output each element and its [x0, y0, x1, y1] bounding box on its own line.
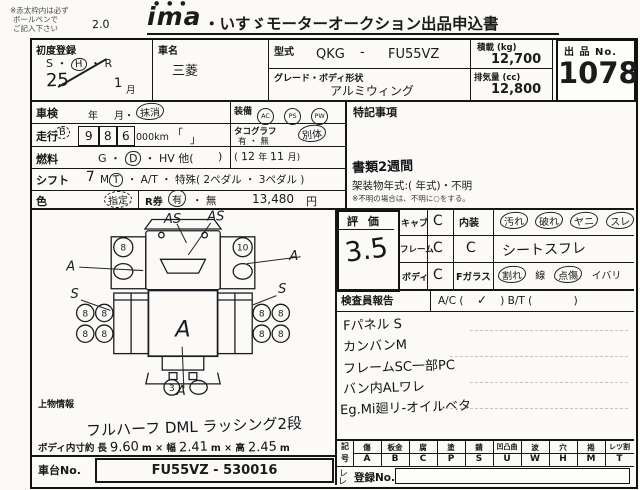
color-value: 指定: [104, 191, 132, 208]
dims-label: ボディ内寸約: [38, 443, 94, 454]
interior-items: 汚れ 破れ ヤニ スレ: [500, 212, 634, 229]
mark-a-bottom: A: [176, 384, 186, 396]
divider: [398, 262, 634, 263]
mileage-digit-box-1: 9: [78, 126, 99, 146]
divider: [152, 38, 153, 100]
legend-symbol-label-2: 号: [341, 453, 349, 464]
model-dash: -: [360, 45, 365, 60]
ps-icon: PS: [284, 108, 301, 125]
legend-name-fushoku: 腐: [409, 442, 437, 453]
chassis-number-box: FU55VZ - 530016: [95, 458, 334, 483]
mileage-bracket-right: 」: [190, 131, 201, 147]
chassis-number-value: FU55VZ - 530016: [152, 463, 278, 478]
fuel-d-circled: D: [124, 151, 141, 167]
legend-name-ana: 穴: [549, 442, 577, 453]
erased-circled: 抹消: [136, 102, 165, 120]
divider: [30, 100, 634, 102]
tread-front-left: 8: [120, 244, 126, 254]
inspector-ac-bt: A/C ( ✓ ) B/T ( ): [438, 293, 578, 307]
inspector-note-4: バン内ALワレ: [343, 376, 425, 398]
legend-name-sabi: 錆: [465, 442, 493, 453]
legend-name-nuri: 塗: [437, 442, 465, 453]
shift-options: MT ・ A/T ・ 特殊( 2ペダル ・ 3ペダル ): [100, 172, 304, 187]
interior-dirt: 汚れ: [500, 211, 529, 229]
bt-close: ): [574, 295, 578, 307]
page-title: ・いすゞモーターオークション出品申込書: [204, 12, 499, 34]
glass-chip: 点傷: [554, 265, 583, 283]
date-year-label: 年: [258, 153, 267, 163]
payload-value: 12,700: [491, 52, 541, 67]
dims-length-label: 長: [97, 443, 107, 454]
legend-code-u: U: [493, 454, 521, 464]
divider: [398, 235, 634, 236]
model-label: 型式: [274, 43, 294, 58]
frame-label: フレーム: [400, 243, 434, 255]
ac-icon: AC: [257, 108, 274, 125]
divider: [335, 289, 634, 291]
legend-code-t: T: [605, 454, 634, 464]
tread-front-right: 10: [237, 244, 249, 254]
inspector-note-2: カンバンM: [343, 334, 407, 355]
car-name-label: 車名: [158, 42, 178, 57]
dims-height-label: m × 高: [211, 443, 245, 454]
tread-rear-right-2: 8: [278, 309, 284, 319]
color-label: 色: [36, 193, 47, 209]
body-dimensions: ボディ内寸約 長 9.60 m × 幅 2.41 m × 高 2.45 m: [38, 440, 290, 455]
interior-tar: ヤニ: [570, 211, 599, 229]
date-year-value: 12: [241, 150, 255, 163]
frame-grade: C: [433, 240, 443, 256]
ruled-line: [440, 408, 628, 409]
bt-open: ) B/T (: [500, 295, 532, 307]
tachograph-hand: 別体: [298, 125, 327, 143]
mileage-digit-2: 8: [104, 129, 112, 143]
rticket-label: R券: [145, 193, 163, 208]
tachograph-date: ( 12 年 11 月): [234, 150, 300, 163]
shift-m: M: [100, 174, 109, 186]
first-registration-month: 1: [114, 76, 123, 91]
cab-label: キャブ: [401, 216, 428, 229]
divider: [268, 68, 552, 69]
legend-code-s: S: [465, 454, 493, 464]
shift-speed: 7: [86, 169, 95, 185]
fuel-g: G ・: [98, 152, 121, 165]
divider: [30, 190, 345, 191]
rticket-yes: 有: [168, 190, 186, 207]
ruled-line: [470, 382, 628, 383]
lot-number-value: 1078: [558, 56, 630, 90]
auction-sheet: ※赤太枠内は必ず ボールペンで ご記入下さい 2.0 ● ● ● ima ・いす…: [0, 0, 640, 490]
date-open: (: [234, 152, 238, 163]
mark-as-1: AS: [163, 212, 181, 227]
mark-a-left: A: [65, 260, 75, 275]
interior-note: シートスフレ: [502, 238, 587, 261]
shift-rest: ・ A/T ・ 特殊( 2ペダル ・ 3ペダル ): [127, 174, 305, 186]
legend-code-m: M: [577, 454, 605, 464]
rticket-yes-circled: 有: [168, 190, 187, 208]
pw-icon: PW: [311, 108, 328, 125]
mileage-digit-1: 9: [84, 129, 92, 143]
tread-rear-left-2: 8: [101, 309, 107, 319]
fuel-options: G ・ D ・ HV 他(: [98, 150, 194, 166]
glass-crack: 割れ: [498, 265, 527, 283]
equipment-icons: AC PS PW: [257, 103, 328, 125]
unknown-note: ※不明の場合は、不明に○をする。: [352, 193, 470, 204]
legend-name-ware: レツ割: [605, 442, 634, 452]
date-month-value: 11: [270, 150, 284, 163]
special-notes-label: 特記事項: [353, 104, 397, 120]
front-glass-items: 割れ 線 点傷 イバリ: [498, 266, 621, 283]
dims-width-value: 2.41: [179, 439, 208, 455]
legend-code-b: B: [381, 454, 409, 464]
dims-width-label: m × 幅: [142, 443, 176, 454]
divider: [335, 439, 634, 441]
interior-scuff: スレ: [605, 211, 634, 229]
divider: [430, 289, 431, 311]
tread-spare: 3: [169, 384, 175, 394]
dims-height-value: 2.45: [248, 439, 277, 455]
legend-code-w: W: [521, 454, 549, 464]
dims-m-label: m: [280, 443, 290, 454]
legend-symbol-label-1: 記: [341, 441, 349, 452]
inspector-note-3: フレームSC一部PC: [343, 354, 455, 377]
body-grade: C: [433, 267, 443, 283]
header-note-line3: ご記入下さい: [13, 23, 58, 34]
grade-label-heading: 評 価: [347, 213, 382, 229]
inspector-note-1: Fパネル S: [343, 313, 403, 334]
mileage-bracket-left: 「: [172, 125, 183, 141]
tread-rear-right-4: 8: [278, 330, 284, 340]
fuel-label: 燃料: [36, 151, 58, 167]
chassis-number-label: 車台No.: [38, 462, 81, 478]
era-s: S ・: [46, 57, 67, 70]
legend-code-p: P: [437, 454, 465, 464]
divider: [30, 455, 335, 457]
mileage-code: B: [55, 126, 70, 139]
damage-annotations: AS AS A A S S A A: [65, 210, 298, 396]
ruled-line: [450, 356, 628, 357]
tachograph-options: 有 ・ 無: [238, 135, 269, 147]
registration-number-label: 登録No.: [354, 470, 395, 485]
date-month-label: 月): [288, 153, 301, 163]
glass-ibari: イバリ: [592, 271, 622, 282]
tread-rear-left-3: 8: [82, 330, 88, 340]
divider: [339, 229, 394, 230]
mileage-unit: 000km: [136, 132, 169, 143]
mark-a-right: A: [288, 249, 298, 264]
era-r: ・ R: [90, 57, 112, 70]
mark-s-left: S: [71, 287, 79, 302]
divider: [552, 38, 553, 100]
registration-number-box: [395, 468, 630, 484]
divider: [453, 208, 454, 289]
divider: [30, 146, 345, 147]
grade-value: アルミウィング: [330, 82, 414, 99]
fuel-close-paren: ): [218, 150, 222, 163]
inspector-report-label: 検査員報告: [341, 293, 394, 308]
inspection-year-label: 年: [88, 107, 98, 122]
model-prefix: QKG: [316, 47, 345, 62]
divider: [138, 190, 139, 208]
damage-annotation-lines: [79, 223, 300, 388]
ac-checkmark: ✓: [477, 293, 488, 307]
shift-t-circled: T: [109, 173, 124, 188]
mounted-body-year: 架装物年式:( 年式)・不明: [352, 178, 472, 193]
inspection-month-label: 月・: [114, 107, 134, 122]
mileage-digit-box-3: 6: [117, 126, 135, 146]
displacement-value: 12,800: [491, 82, 541, 97]
divider: [30, 168, 345, 169]
car-name-value: 三菱: [172, 60, 198, 79]
tachograph-hand-circled: 別体: [297, 124, 326, 143]
legend-name-nami: 波: [521, 442, 549, 453]
month-unit: 月: [126, 82, 136, 96]
color-value-circled: 指定: [104, 190, 133, 208]
legend-name-kizu: 傷: [353, 442, 381, 453]
dims-length-value: 9.60: [110, 439, 139, 455]
mark-as-2: AS: [206, 210, 224, 224]
equipment-label: 装備: [234, 104, 252, 117]
fuel-rest: ・ HV 他(: [145, 152, 194, 165]
documents-note: 書類2週間: [352, 155, 414, 176]
ruled-line: [470, 330, 628, 331]
divider: [345, 100, 347, 208]
glass-line: 線: [535, 271, 545, 282]
rticket-yen: 円: [306, 193, 317, 209]
legend-name-mekure: 捲: [577, 442, 605, 453]
interior-label: 内装: [459, 214, 479, 229]
tread-rear-right-3: 8: [259, 330, 265, 340]
legend-name-bankin: 板金: [381, 442, 409, 453]
interior-grade: C: [466, 240, 476, 256]
front-glass-label: Fガラス: [456, 269, 491, 283]
tread-rear-left-4: 8: [101, 330, 107, 340]
inspection-erased: 抹消: [136, 103, 164, 120]
ac-open: A/C (: [438, 295, 464, 307]
interior-tear: 破れ: [535, 211, 564, 229]
mileage-code-circled: B: [55, 126, 71, 140]
brand-logo: ima: [147, 2, 202, 31]
mileage-digit-box-2: 8: [99, 126, 117, 146]
mark-s-right: S: [278, 282, 286, 297]
tread-rear-right-1: 8: [259, 309, 265, 319]
rticket-no: ・ 無: [192, 193, 216, 208]
cab-grade: C: [433, 213, 443, 229]
body-info-label: 上物情報: [38, 397, 74, 410]
legend-code-h: H: [549, 454, 577, 464]
rticket-price: 13,480: [252, 192, 294, 206]
legend-code-c: C: [409, 454, 437, 464]
legend-name-dent: 凹凸曲: [493, 442, 521, 452]
divider: [230, 100, 231, 168]
body-label: ボディ: [402, 270, 428, 283]
truck-diagram: AS AS A A S S A A 8 10 8 8 8 8 8 8 8 8 3: [46, 210, 320, 396]
title-underline: [147, 33, 559, 35]
model-value: FU55VZ: [388, 47, 439, 62]
legend-code-a: A: [353, 454, 381, 464]
handwritten-note: 2.0: [92, 18, 110, 32]
inspection-label: 車検: [36, 105, 58, 121]
grade-score: 3.5: [343, 232, 390, 269]
tread-rear-left-1: 8: [82, 309, 88, 319]
divider: [493, 208, 494, 289]
first-registration-era: S ・ H ・ R: [46, 55, 112, 71]
mileage-digit-3: 6: [122, 129, 130, 143]
shift-label: シフト: [36, 172, 69, 188]
mark-a-center: A: [173, 316, 190, 342]
check-mark-2: レ: [338, 474, 347, 487]
divider: [335, 311, 634, 312]
